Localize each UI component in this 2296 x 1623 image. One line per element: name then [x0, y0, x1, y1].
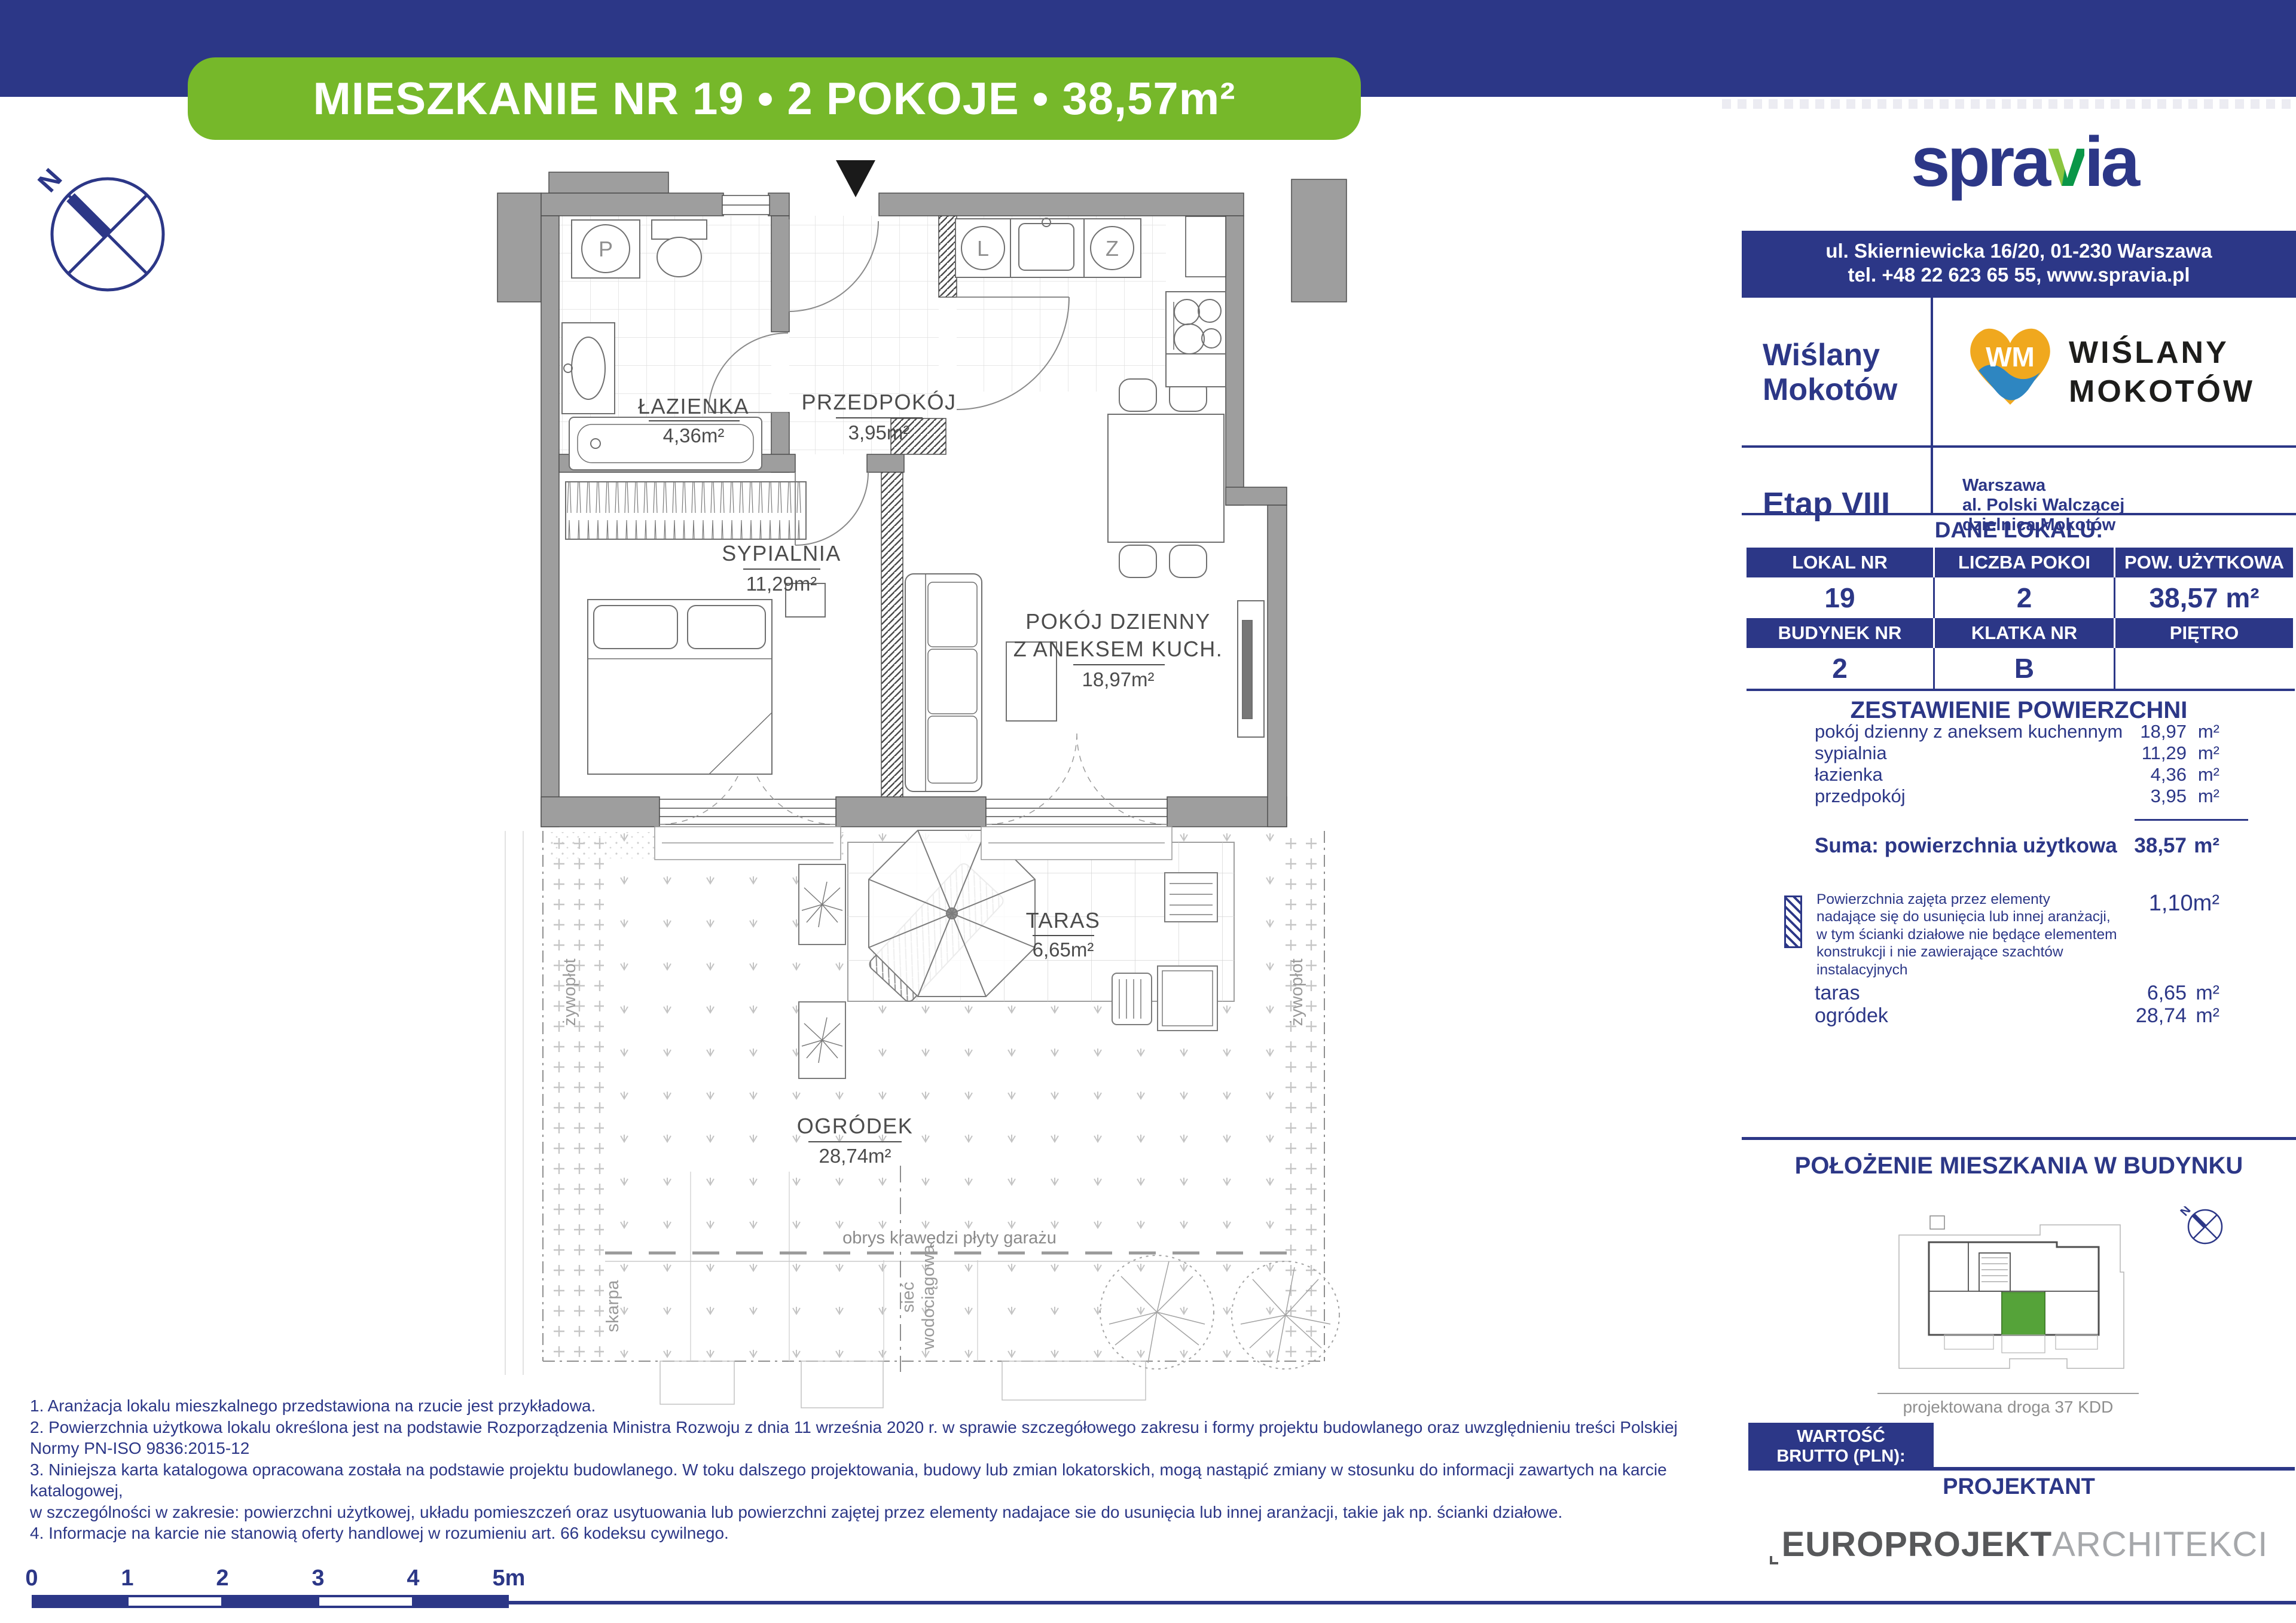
outdoor-row-ogrodek: ogródek 28,74 m² — [1815, 1004, 2219, 1027]
outdoor-unit: m² — [2187, 982, 2219, 1005]
divider — [1742, 445, 2296, 448]
hatch-legend-value: 1,10m² — [2105, 891, 2219, 916]
area-label: przedpokój — [1815, 785, 2130, 807]
room-label-pokoj-dzienny2: Z ANEKSEM KUCH. — [1013, 637, 1223, 661]
area-unit: m² — [2187, 742, 2219, 764]
architect-name-bold: EUROPROJEKT — [1782, 1525, 2053, 1564]
outdoor-areas: taras 6,65 m² ogródek 28,74 m² — [1815, 982, 2219, 1027]
wm-title-line1: WIŚLANY — [2069, 335, 2229, 370]
project-name-line1: Wiślany — [1763, 338, 1897, 372]
area-value: 18,97 — [2130, 721, 2187, 742]
sum-divider — [2135, 819, 2248, 821]
table-value-budynek-nr: 2 — [1747, 648, 1933, 689]
room-label-taras: TARAS — [1026, 908, 1101, 933]
architect-logo: EUROPROJEKTARCHITEKCI — [1742, 1524, 2296, 1564]
project-name: Wiślany Mokotów — [1763, 338, 1897, 407]
building-mini-map: N — [1871, 1206, 2236, 1393]
area-unit: m² — [2187, 764, 2219, 785]
table-value-lokal-nr: 19 — [1747, 577, 1933, 618]
logo-part1: spra — [1911, 123, 2048, 201]
sum-label: Suma: powierzchnia użytkowa — [1815, 834, 2130, 858]
room-label-sypialnia: SYPIALNIA — [722, 541, 841, 566]
water-main-label1: sieć — [899, 1282, 918, 1313]
sum-value: 38,57 — [2130, 834, 2187, 858]
area-row: sypialnia 11,29 m² — [1815, 742, 2219, 764]
area-value: 3,95 — [2130, 785, 2187, 807]
outdoor-row-taras: taras 6,65 m² — [1815, 982, 2219, 1004]
entrance-marker-icon — [836, 160, 875, 197]
outdoor-unit: m² — [2187, 1004, 2219, 1028]
legend-line: Powierzchnia zajęta przez elementy — [1816, 891, 2151, 908]
washer-letter: P — [599, 237, 613, 261]
divider — [1742, 1137, 2296, 1140]
slope-label: skarpa — [603, 1280, 622, 1332]
area-value: 4,36 — [2130, 764, 2187, 785]
garage-edge-label: obrys krawędzi płyty garażu — [842, 1228, 1057, 1248]
developer-address: ul. Skierniewicka 16/20, 01-230 Warszawa… — [1742, 231, 2296, 298]
scale-tick: 0 — [25, 1566, 38, 1591]
table-header: KLATKA NR — [1933, 618, 2114, 648]
area-value: 11,29 — [2130, 742, 2187, 764]
address-line2: tel. +48 22 623 65 55, www.spravia.pl — [1742, 263, 2296, 287]
outdoor-label: taras — [1815, 982, 2130, 1005]
unit-data-heading: DANE LOKALU: — [1742, 518, 2296, 543]
outdoor-label: ogródek — [1815, 1004, 2130, 1028]
water-main-label2: wodociągowa — [919, 1244, 938, 1350]
scale-tick: 4 — [407, 1566, 419, 1591]
areas-list: pokój dzienny z aneksem kuchennym 18,97 … — [1815, 721, 2219, 807]
price-label-line1: WARTOŚĆ — [1748, 1427, 1934, 1447]
mini-compass-icon — [2188, 1210, 2222, 1243]
room-area-przedpokoj: 3,95m² — [848, 421, 910, 444]
footnote-line: 4. Informacje na karcie nie stanowią ofe… — [30, 1523, 1710, 1544]
legend-line: konstrukcji i nie zawierające szachtów i… — [1816, 943, 2151, 979]
footnotes: 1. Aranżacja lokalu mieszkalnego przedst… — [30, 1395, 1710, 1544]
legend-line: w tym ścianki działowe nie będące elemen… — [1816, 926, 2151, 943]
scale-tick: 5m — [493, 1566, 526, 1591]
room-area-pokoj-dzienny: 18,97m² — [1082, 668, 1154, 690]
table-value-pow-uzytkowa: 38,57 m² — [2114, 577, 2293, 618]
area-row: łazienka 4,36 m² — [1815, 764, 2219, 785]
address-line1: ul. Skierniewicka 16/20, 01-230 Warszawa — [1742, 239, 2296, 263]
area-label: pokój dzienny z aneksem kuchennym — [1815, 721, 2130, 742]
room-area-ogrodek: 28,74m² — [819, 1145, 891, 1167]
table-header: POW. UŻYTKOWA — [2114, 548, 2293, 577]
wm-title-line2: MOKOTÓW — [2069, 374, 2255, 409]
location-city: Warszawa — [1962, 476, 2124, 496]
caption-divider — [1877, 1393, 2139, 1394]
area-row: pokój dzienny z aneksem kuchennym 18,97 … — [1815, 721, 2219, 742]
room-area-lazienka: 4,36m² — [663, 424, 725, 447]
architect-name-light: ARCHITEKCI — [2052, 1525, 2268, 1564]
area-row: przedpokój 3,95 m² — [1815, 785, 2219, 807]
footnote-line: 2. Powierzchnia użytkowa lokalu określon… — [30, 1417, 1710, 1459]
project-name-line2: Mokotów — [1763, 372, 1897, 407]
scale-bar: 0 1 2 3 4 5m — [18, 1553, 568, 1620]
scale-tick: 2 — [216, 1566, 228, 1591]
divider — [1742, 513, 2296, 515]
freezer-letter: Z — [1106, 236, 1119, 261]
hedge-right-label: żywopłot — [1287, 959, 1306, 1026]
logo-part2: ia — [2084, 123, 2137, 201]
table-header: BUDYNEK NR — [1747, 618, 1933, 648]
wislany-mokotow-logo: WM WIŚLANY MOKOTÓW — [1967, 323, 2296, 412]
area-label: sypialnia — [1815, 742, 2130, 764]
price-value-field — [1934, 1423, 2295, 1471]
area-label: łazienka — [1815, 764, 2130, 785]
table-value-liczba-pokoi: 2 — [1933, 577, 2114, 618]
fridge-letter: L — [977, 236, 989, 261]
bottom-rule — [509, 1601, 2296, 1604]
road-caption: projektowana droga 37 KDD — [1877, 1398, 2139, 1417]
price-label-box: WARTOŚĆ BRUTTO (PLN): — [1748, 1423, 1934, 1471]
room-label-lazienka: ŁAZIENKA — [638, 394, 749, 418]
room-label-przedpokoj: PRZEDPOKÓJ — [801, 390, 956, 414]
room-label-ogrodek: OGRÓDEK — [797, 1114, 914, 1138]
spravia-logo: spravia — [1851, 127, 2197, 197]
footnote-line: 3. Niniejsza karta katalogowa opracowana… — [30, 1459, 1710, 1502]
scale-tick: 1 — [121, 1566, 133, 1591]
footnote-line: 1. Aranżacja lokalu mieszkalnego przedst… — [30, 1395, 1710, 1417]
price-label-line2: BRUTTO (PLN): — [1748, 1447, 1934, 1466]
hatch-legend-text: Powierzchnia zajęta przez elementy nadaj… — [1816, 891, 2151, 979]
table-header: LOKAL NR — [1747, 548, 1933, 577]
hatch-legend-icon — [1784, 895, 1802, 948]
footnote-line: w szczególności w zakresie: powierzchni … — [30, 1502, 1710, 1523]
table-header: LICZBA POKOI — [1933, 548, 2114, 577]
sum-unit: m² — [2187, 834, 2219, 858]
unit-data-table: LOKAL NR LICZBA POKOI POW. UŻYTKOWA 19 2… — [1747, 548, 2295, 691]
highlighted-unit — [2002, 1292, 2045, 1335]
area-unit: m² — [2187, 721, 2219, 742]
scale-tick: 3 — [312, 1566, 324, 1591]
hedge-left-label: żywopłot — [560, 959, 579, 1026]
room-label-pokoj-dzienny: POKÓJ DZIENNY — [1025, 609, 1211, 634]
area-unit: m² — [2187, 785, 2219, 807]
outdoor-value: 28,74 — [2130, 1004, 2187, 1028]
wm-monogram: WM — [1986, 341, 2035, 372]
sum-row: Suma: powierzchnia użytkowa 38,57 m² — [1815, 832, 2219, 860]
room-area-sypialnia: 11,29m² — [746, 573, 817, 595]
legend-line: nadające się do usunięcia lub innej aran… — [1816, 908, 2151, 925]
decor-tick-strip — [1722, 99, 2296, 109]
floor-plan: P L Z ŁAZIENKA 4,36m² PRZEDPOKÓJ 3,95m² … — [0, 96, 1734, 1500]
project-stage: Etap VIII — [1763, 485, 1890, 522]
table-value-klatka-nr: B — [1933, 648, 2114, 689]
vertical-divider — [1931, 298, 1933, 513]
room-area-taras: 6,65m² — [1033, 939, 1094, 961]
outdoor-value: 6,65 — [2130, 982, 2187, 1005]
areas-heading: ZESTAWIENIE POWIERZCHNI — [1742, 697, 2296, 724]
logo-accent-v: v — [2048, 123, 2084, 201]
building-location-heading: POŁOŻENIE MIESZKANIA W BUDYNKU — [1742, 1153, 2296, 1179]
architect-logo-mark-icon — [1770, 1556, 1778, 1564]
table-header: PIĘTRO — [2114, 618, 2293, 648]
table-value-pietro — [2114, 648, 2293, 689]
designer-heading: PROJEKTANT — [1742, 1474, 2296, 1500]
